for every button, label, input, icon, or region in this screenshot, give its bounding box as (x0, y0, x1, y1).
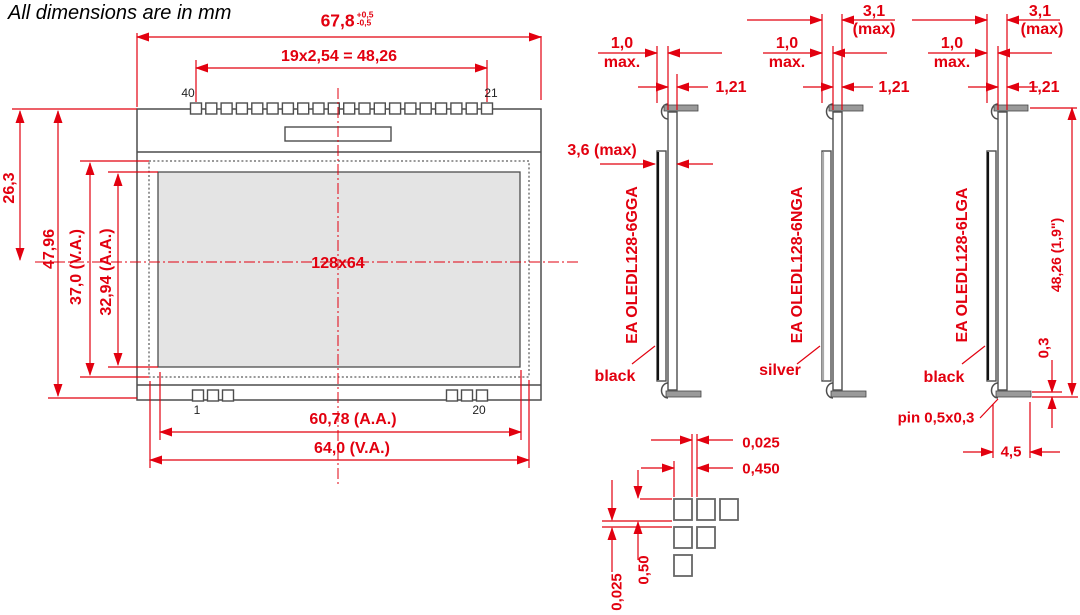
sv3-part-name: EA OLEDL128-6LGA (955, 188, 971, 343)
dim-aa-height: 32,94 (A.A.) (99, 228, 115, 315)
detail-gap-v-dim: 0,025 (610, 573, 625, 611)
sv2-bezel-color: silver (759, 363, 801, 379)
dim-total-width: 67,8 +0,5 -0,5 (321, 12, 374, 30)
solder-pad (674, 527, 692, 548)
pin-number-1: 1 (194, 404, 201, 416)
drawing-canvas: .g{stroke:#4d4d4d;stroke-width:1.5;fill:… (0, 0, 1080, 615)
sv3-bezel-color: black (924, 370, 965, 386)
sv1-thickness-dim: 3,6 (max) (567, 143, 636, 159)
solder-pad (674, 499, 692, 520)
sv2-pin-dim-qualifier: max. (769, 55, 805, 71)
sv3-pin-thickness-dim: 0,3 (1037, 338, 1052, 359)
sv3-thickness-qualifier: (max) (1021, 22, 1064, 38)
sv2-thickness-dim: 3,1 (863, 4, 885, 20)
solder-pad (697, 527, 715, 548)
sv3-pin-note: pin 0,5x0,3 (898, 411, 975, 426)
pin-number-21: 21 (484, 87, 497, 99)
sv3-pin-dim: 1,0 (941, 36, 963, 52)
dim-total-height: 47,96 (42, 229, 58, 269)
dim-top-to-center: 26,3 (2, 172, 18, 203)
detail-gap-h-dim: 0,025 (742, 436, 780, 451)
sv3-offset-dim: 1,21 (1028, 80, 1059, 96)
drawing-title: All dimensions are in mm (8, 2, 231, 25)
sv1-bezel-color: black (595, 369, 636, 385)
solder-pad (697, 499, 715, 520)
pin-number-40: 40 (181, 87, 194, 99)
dim-va-width: 64,0 (V.A.) (314, 441, 390, 457)
detail-pad-v-dim: 0,50 (637, 555, 652, 584)
sv1-pin-dim-qualifier: max. (604, 55, 640, 71)
sv2-pin-dim: 1,0 (776, 36, 798, 52)
sv2-thickness-qualifier: (max) (853, 22, 896, 38)
sv3-height-dim: 48,26 (1,9") (1049, 218, 1063, 292)
solder-pad (720, 499, 738, 520)
dim-aa-width: 60,78 (A.A.) (309, 412, 396, 428)
pad-detail-geometry (602, 434, 738, 576)
front-view-geometry (137, 103, 541, 401)
dim-pin-pitch: 19x2,54 = 48,26 (281, 49, 397, 65)
dim-va-height: 37,0 (V.A.) (69, 229, 85, 305)
solder-pad (674, 555, 692, 576)
drawing-page: .g{stroke:#4d4d4d;stroke-width:1.5;fill:… (0, 0, 1080, 615)
pin-note-leader (980, 399, 998, 418)
dim-total-width-value: 67,8 (321, 12, 355, 30)
sv3-foot-dim: 4,5 (1001, 445, 1022, 460)
sv3-pin-dim-qualifier: max. (934, 55, 970, 71)
sv1-pin-dim: 1,0 (611, 36, 633, 52)
sv3-thickness-dim: 3,1 (1029, 4, 1051, 20)
sv2-part-name: EA OLEDL128-6NGA (790, 187, 806, 344)
pin-number-20: 20 (472, 404, 485, 416)
sv1-offset-dim: 1,21 (715, 80, 746, 96)
sv2-offset-dim: 1,21 (878, 80, 909, 96)
detail-pitch-h-dim: 0,450 (742, 462, 780, 477)
dim-total-width-tolerance: +0,5 -0,5 (357, 10, 374, 26)
sv1-part-name: EA OLEDL128-6GGA (625, 186, 641, 344)
display-resolution: 128x64 (311, 256, 364, 272)
side-views-geometry (598, 14, 1060, 398)
